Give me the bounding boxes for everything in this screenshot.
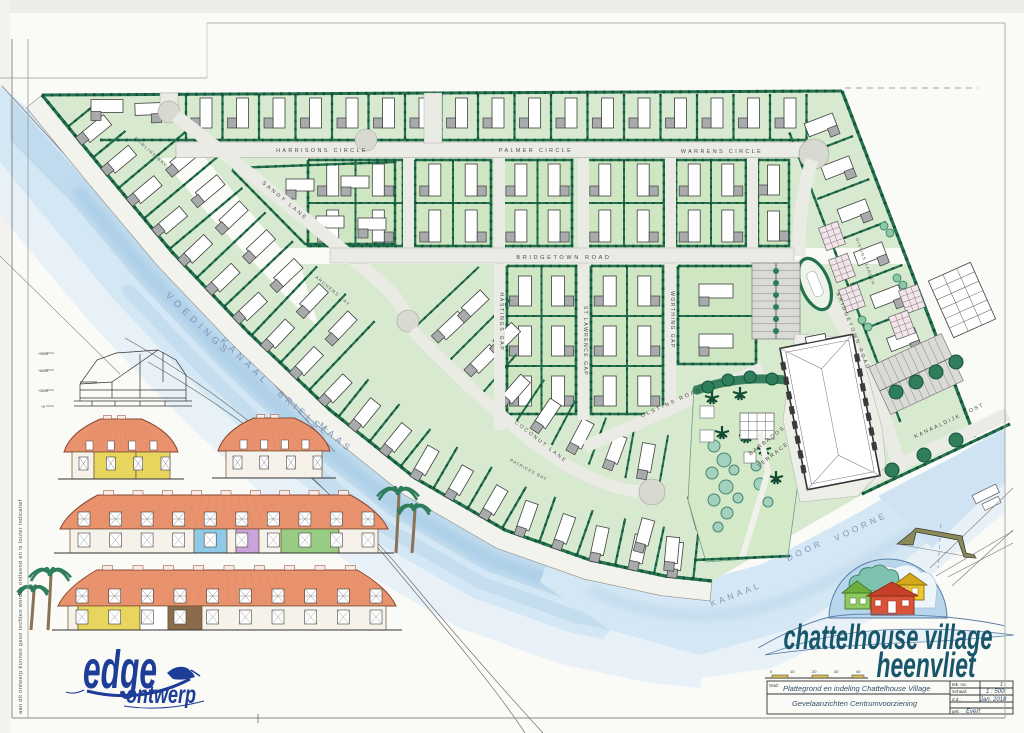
svg-text:HASTINGS GAP: HASTINGS GAP bbox=[498, 292, 504, 351]
svg-text:30: 30 bbox=[834, 669, 839, 674]
svg-text:aan dit ontwerp kunnen geen re: aan dit ontwerp kunnen geen rechten word… bbox=[18, 499, 24, 714]
svg-text:Jan. 2018: Jan. 2018 bbox=[979, 697, 1007, 703]
svg-text:d.d. :: d.d. : bbox=[952, 697, 962, 702]
svg-text:Ond:: Ond: bbox=[769, 683, 779, 688]
svg-text:Gevelaanzichten Centrumvoorzie: Gevelaanzichten Centrumvoorziening bbox=[792, 699, 918, 708]
svg-text:+9000: +9000 bbox=[38, 352, 48, 356]
svg-text:ST LAWRENCE GAP: ST LAWRENCE GAP bbox=[582, 306, 588, 376]
svg-text:1 : 500: 1 : 500 bbox=[986, 689, 1005, 695]
svg-text:Schaal:: Schaal: bbox=[952, 689, 967, 694]
svg-text:+3000: +3000 bbox=[38, 389, 48, 393]
svg-text:get:: get: bbox=[952, 709, 960, 714]
svg-text:PALMER CIRCLE: PALMER CIRCLE bbox=[499, 148, 573, 154]
svg-text:WARRENS CIRCLE: WARRENS CIRCLE bbox=[681, 149, 763, 155]
svg-text:BRIDGETOWN ROAD: BRIDGETOWN ROAD bbox=[516, 255, 611, 261]
svg-text:40: 40 bbox=[856, 669, 861, 674]
svg-text:Plattegrond en indeling Chatte: Plattegrond en indeling Chattelhouse Vil… bbox=[783, 684, 930, 693]
svg-text:+0: +0 bbox=[41, 405, 45, 409]
svg-text:+6000: +6000 bbox=[38, 369, 48, 373]
svg-text:heenvliet: heenvliet bbox=[877, 646, 977, 685]
svg-text:HARRISONS CIRCLE: HARRISONS CIRCLE bbox=[276, 148, 368, 154]
svg-text:tek. no:: tek. no: bbox=[952, 682, 967, 687]
svg-text:10: 10 bbox=[790, 669, 795, 674]
svg-text:WORTHING GAP: WORTHING GAP bbox=[669, 291, 675, 349]
svg-text:Evert: Evert bbox=[966, 709, 980, 715]
svg-text:1: 1 bbox=[1000, 682, 1003, 688]
svg-text:20: 20 bbox=[812, 669, 817, 674]
